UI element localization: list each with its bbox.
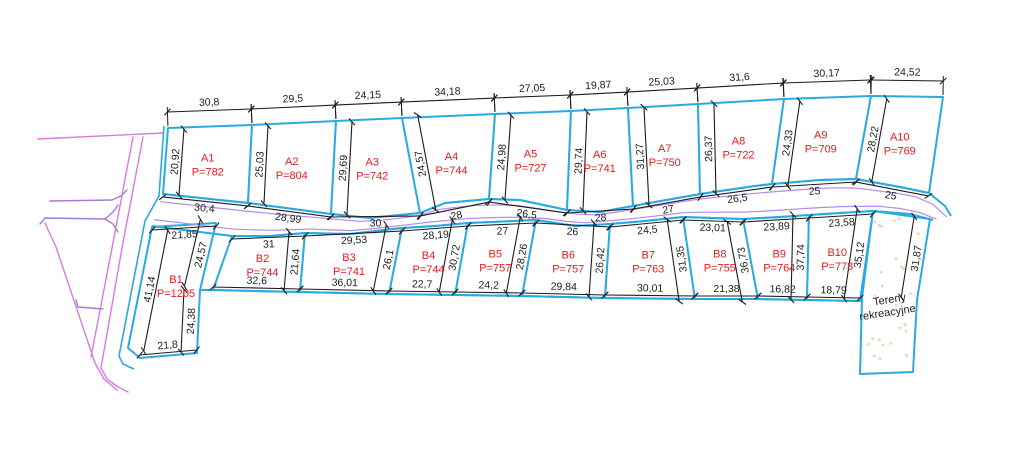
- dimension-label: 27,05: [519, 82, 546, 95]
- svg-text:P=750: P=750: [649, 157, 681, 169]
- dimension-label: 28: [594, 212, 607, 225]
- road-line: [76, 300, 103, 309]
- dimension-label: 29,69: [337, 154, 350, 181]
- dimension-label: 25,03: [253, 151, 266, 178]
- svg-text:P=744: P=744: [412, 264, 444, 276]
- plots-layer: [128, 96, 951, 374]
- dimension-label: 31: [263, 238, 275, 250]
- svg-text:P=757: P=757: [479, 263, 511, 275]
- dimension-label: 24,2: [478, 279, 499, 291]
- dimension-label: 16,82: [769, 283, 796, 296]
- dimension-label: 18,79: [820, 284, 847, 297]
- svg-text:P=742: P=742: [356, 171, 388, 183]
- svg-text:B4: B4: [422, 250, 435, 262]
- svg-text:P=763: P=763: [632, 264, 664, 276]
- svg-text:A3: A3: [366, 157, 379, 169]
- dimension-label: 21,85: [171, 228, 198, 242]
- dimension-label: 34,18: [434, 85, 461, 98]
- svg-text:P=744: P=744: [246, 267, 278, 279]
- svg-text:A1: A1: [201, 153, 214, 165]
- svg-text:A4: A4: [445, 151, 458, 163]
- svg-text:P=769: P=769: [884, 145, 916, 157]
- svg-text:B1: B1: [169, 274, 182, 286]
- svg-text:P=709: P=709: [805, 144, 837, 156]
- svg-text:B7: B7: [642, 250, 655, 262]
- svg-text:P=755: P=755: [704, 263, 736, 275]
- road-line: [40, 218, 118, 232]
- svg-text:A8: A8: [732, 135, 745, 147]
- svg-text:B9: B9: [773, 248, 786, 260]
- svg-text:A7: A7: [658, 143, 671, 155]
- dimension-label: 26,5: [726, 192, 748, 207]
- dimension-label: 19,87: [585, 79, 612, 92]
- dimension-label: 31,27: [634, 143, 647, 170]
- svg-text:P=778: P=778: [821, 261, 853, 273]
- dimension-label: 21,8: [157, 339, 179, 353]
- dimension-label: 30,8: [199, 96, 220, 109]
- subdivision-plan-svg: 30,829,524,1534,1827,0519,8725,0331,630,…: [0, 0, 1024, 472]
- dimension-label: 24,15: [354, 89, 381, 102]
- dimension-label: 24,38: [185, 308, 198, 335]
- dimension-label: 29,53: [341, 234, 368, 247]
- svg-text:P=741: P=741: [584, 163, 616, 175]
- dimension-label: 28,19: [422, 229, 449, 243]
- dimension-label: 29,84: [550, 281, 577, 294]
- road-line: [50, 190, 127, 201]
- svg-text:A9: A9: [814, 130, 827, 142]
- dimension-label: 26,37: [703, 135, 716, 162]
- svg-text:P=757: P=757: [552, 264, 584, 276]
- svg-text:B10: B10: [827, 247, 847, 259]
- svg-text:P=744: P=744: [435, 165, 467, 177]
- road-line: [91, 137, 133, 357]
- road-line: [105, 205, 118, 219]
- road-line: [45, 223, 117, 390]
- dimension-label: 23,01: [699, 222, 726, 235]
- dimension-label: 36,01: [331, 277, 358, 290]
- dimension-label: 24,52: [894, 66, 921, 78]
- svg-text:A6: A6: [593, 149, 606, 161]
- dimension-label: 28,99: [274, 211, 302, 226]
- svg-text:P=1205: P=1205: [157, 288, 195, 300]
- svg-text:P=782: P=782: [192, 167, 224, 179]
- dimension-label: 25: [884, 189, 898, 203]
- dimension-label: 25: [808, 185, 821, 198]
- svg-text:P=804: P=804: [276, 170, 308, 182]
- svg-text:B5: B5: [489, 249, 502, 261]
- dimension-label: 22,7: [412, 278, 433, 290]
- dimension-label: 23,89: [763, 220, 790, 234]
- dimension-label: 26,42: [594, 247, 608, 274]
- dimension-label: 30,4: [194, 201, 216, 215]
- dimension-label: 29,5: [282, 93, 303, 106]
- dimension-label: 21,64: [288, 248, 302, 275]
- svg-text:A2: A2: [285, 156, 298, 168]
- svg-text:B6: B6: [562, 250, 575, 262]
- dimension-label: 30: [370, 217, 382, 229]
- dimension-label: 31,6: [729, 71, 750, 84]
- dimension-label: 30,01: [637, 282, 664, 294]
- svg-text:P=764: P=764: [763, 262, 795, 274]
- svg-text:P=741: P=741: [333, 266, 365, 278]
- svg-text:B8: B8: [713, 249, 726, 261]
- dimension-label: 23,58: [828, 216, 855, 230]
- svg-text:B3: B3: [342, 252, 355, 264]
- dimension-label: 20,92: [169, 148, 183, 175]
- dimension-label: 24,5: [637, 223, 659, 237]
- svg-text:A10: A10: [890, 131, 910, 143]
- plan-page: 30,829,524,1534,1827,0519,8725,0331,630,…: [0, 0, 1024, 472]
- svg-text:A5: A5: [524, 149, 537, 161]
- dimension-label: 30,17: [813, 67, 840, 80]
- dimension-label: 27: [496, 225, 508, 238]
- dimension-label: 25,03: [648, 75, 675, 89]
- dimension-label: 27: [661, 203, 675, 217]
- svg-text:B2: B2: [256, 253, 269, 265]
- dimension-label: 26: [566, 226, 578, 239]
- dimension-label: 24,98: [495, 144, 509, 171]
- road-line: [38, 133, 163, 139]
- svg-text:P=727: P=727: [514, 163, 546, 175]
- dimension-label: 21,38: [713, 283, 739, 295]
- dimension-label: 37,74: [795, 244, 808, 271]
- svg-text:P=722: P=722: [722, 149, 754, 161]
